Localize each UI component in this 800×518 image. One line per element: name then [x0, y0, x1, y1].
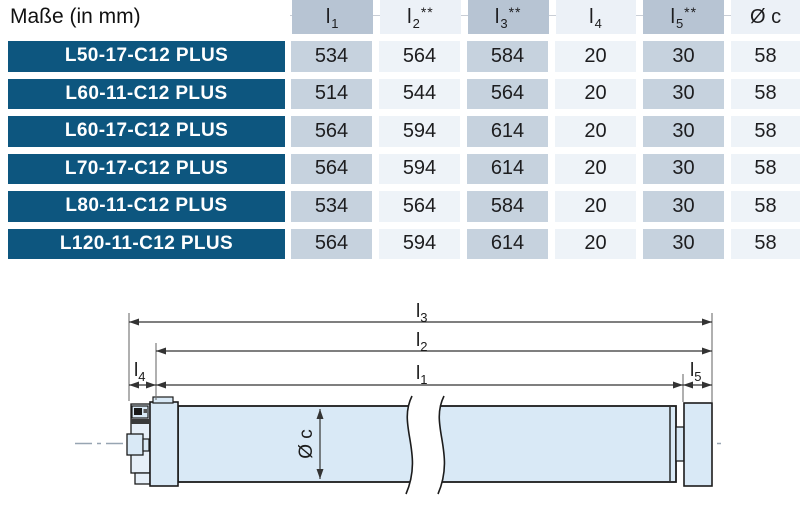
table-cell: 564: [379, 191, 460, 222]
dim-footnote-marker: **: [684, 4, 697, 20]
model-cell: L120-11-C12 PLUS: [8, 229, 285, 260]
table-cell: 20: [555, 41, 636, 72]
table-cell: 534: [291, 41, 372, 72]
table-row: L80-11-C12 PLUS 534 564 584 20 30 58: [0, 191, 800, 222]
extension-lines: [129, 313, 712, 402]
table-cell: 30: [643, 116, 724, 147]
table-cell: 58: [731, 41, 800, 72]
dim-subscript: 2: [413, 16, 420, 31]
table-cell: 30: [643, 79, 724, 110]
dim-symbol: l: [326, 6, 330, 29]
table-cell: 20: [555, 79, 636, 110]
table-cell: 20: [555, 116, 636, 147]
dimension-label-l3: l3: [416, 301, 427, 325]
column-header-l2: l2**: [380, 0, 461, 34]
table-cell: 58: [731, 116, 800, 147]
column-header-l1: l1: [292, 0, 373, 34]
motor-dimension-drawing: l3 l2 l1 l4 l5 Ø c: [0, 288, 800, 518]
table-cell: 20: [555, 229, 636, 260]
dim-symbol: l: [407, 6, 411, 29]
dim-symbol: l: [589, 6, 593, 29]
dim-symbol: l: [495, 6, 499, 29]
table-cell: 584: [467, 41, 548, 72]
table-cell: 30: [643, 191, 724, 222]
table-cell: 58: [731, 191, 800, 222]
table-cell: 584: [467, 191, 548, 222]
table-cell: 614: [467, 154, 548, 185]
table-cell: 564: [379, 41, 460, 72]
table-cell: 594: [379, 229, 460, 260]
table-cell: 564: [291, 154, 372, 185]
table-cell: 58: [731, 79, 800, 110]
dim-subscript: 5: [676, 16, 683, 31]
dim-subscript: 1: [331, 16, 338, 31]
model-cell: L50-17-C12 PLUS: [8, 41, 285, 72]
dimension-label-diameter: Ø c: [296, 429, 317, 459]
dim-subscript: 3: [500, 16, 507, 31]
dimension-label-l4: l4: [134, 360, 145, 384]
column-header-diameter: Ø c: [731, 0, 800, 34]
table-cell: 594: [379, 116, 460, 147]
table-cell: 614: [467, 116, 548, 147]
table-cell: 58: [731, 154, 800, 185]
column-header-l3: l3**: [468, 0, 549, 34]
table-cell: 564: [467, 79, 548, 110]
dimension-label-l5: l5: [690, 360, 701, 384]
spec-sheet: Maße (in mm) l1 l2** l3** l4 l5** Ø c L5…: [0, 0, 800, 518]
model-cell: L70-17-C12 PLUS: [8, 154, 285, 185]
motor-head: [127, 397, 178, 486]
table-cell: 614: [467, 229, 548, 260]
dim-footnote-marker: **: [509, 4, 522, 20]
table-title: Maße (in mm): [8, 0, 286, 34]
column-header-l5: l5**: [643, 0, 724, 34]
table-cell: 564: [291, 229, 372, 260]
table-row: L50-17-C12 PLUS 534 564 584 20 30 58: [0, 41, 800, 72]
model-cell: L80-11-C12 PLUS: [8, 191, 285, 222]
table-row: L60-11-C12 PLUS 514 544 564 20 30 58: [0, 79, 800, 110]
table-cell: 514: [291, 79, 372, 110]
model-cell: L60-11-C12 PLUS: [8, 79, 285, 110]
dim-footnote-marker: **: [421, 4, 434, 20]
table-row: L60-17-C12 PLUS 564 594 614 20 30 58: [0, 116, 800, 147]
drive-end-cap: [676, 403, 712, 486]
table-cell: 534: [291, 191, 372, 222]
table-row: L70-17-C12 PLUS 564 594 614 20 30 58: [0, 154, 800, 185]
table-cell: 594: [379, 154, 460, 185]
table-cell: 544: [379, 79, 460, 110]
dim-subscript: 4: [595, 16, 602, 31]
diameter-symbol: Ø c: [750, 6, 781, 29]
table-cell: 20: [555, 191, 636, 222]
table-cell: 30: [643, 154, 724, 185]
dimension-label-l2: l2: [416, 330, 427, 354]
dim-symbol: l: [670, 6, 674, 29]
table-cell: 30: [643, 41, 724, 72]
table-cell: 20: [555, 154, 636, 185]
table-cell: 564: [291, 116, 372, 147]
table-cell: 58: [731, 229, 800, 260]
dimension-label-l1: l1: [416, 363, 427, 387]
model-cell: L60-17-C12 PLUS: [8, 116, 285, 147]
table-row: L120-11-C12 PLUS 564 594 614 20 30 58: [0, 229, 800, 260]
dimension-table: Maße (in mm) l1 l2** l3** l4 l5** Ø c L5…: [0, 0, 800, 266]
tube-break-symbol: [406, 396, 444, 494]
column-header-l4: l4: [556, 0, 637, 34]
table-cell: 30: [643, 229, 724, 260]
table-header-row: Maße (in mm) l1 l2** l3** l4 l5** Ø c: [0, 0, 800, 34]
